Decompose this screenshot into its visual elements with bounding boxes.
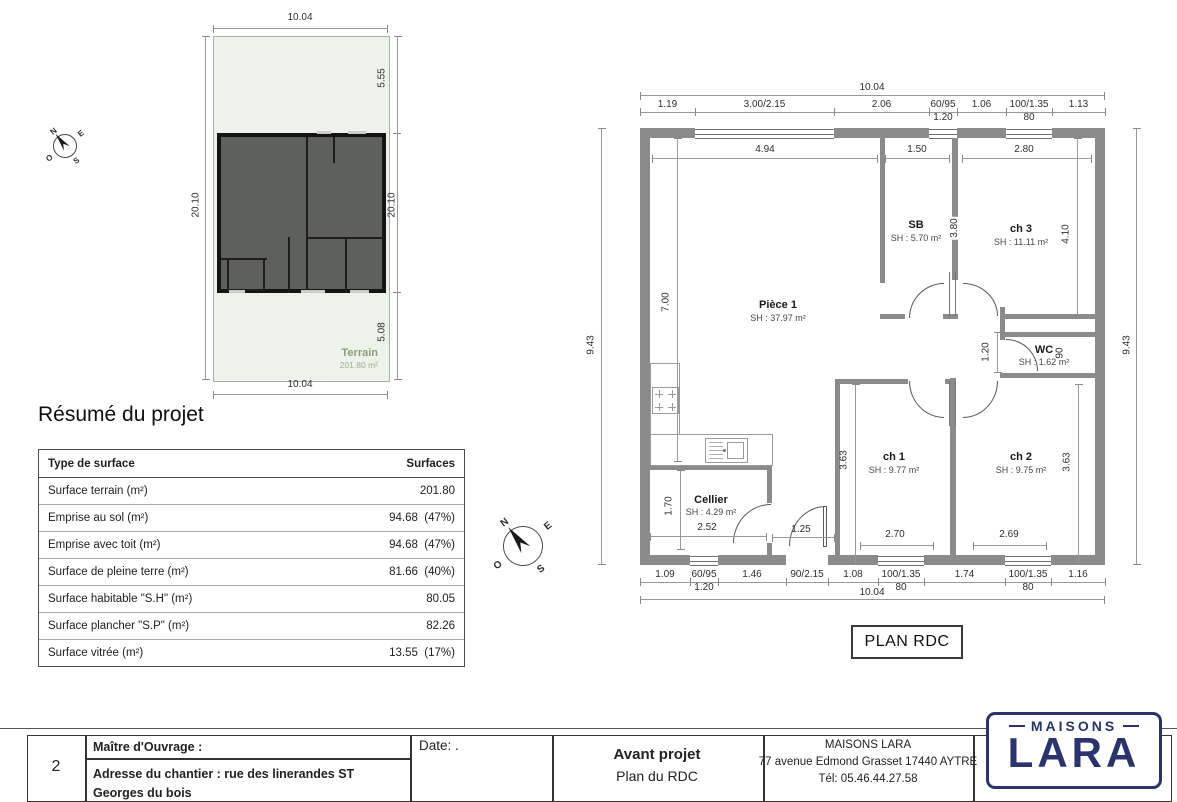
col-value-header: Surfaces bbox=[406, 458, 455, 470]
dim-label: 10.04 bbox=[287, 379, 312, 390]
dim-label: 3.00/2.15 bbox=[744, 99, 786, 110]
company-phone: Tél: 05.46.44.27.58 bbox=[818, 773, 917, 785]
interior-room-outline bbox=[227, 258, 265, 291]
dim-line bbox=[652, 158, 878, 159]
interior-wall-line bbox=[333, 137, 335, 163]
dim-label: 60/95 bbox=[691, 569, 716, 580]
interior-wall bbox=[835, 379, 840, 565]
dim-segment: 1.08 bbox=[828, 569, 878, 583]
summary-table: Type de surface Surfaces Surface terrain… bbox=[38, 449, 465, 667]
dim-label: 4.10 bbox=[1061, 224, 1072, 243]
table-header-row: Type de surface Surfaces bbox=[39, 450, 464, 478]
dim-line bbox=[973, 545, 1047, 546]
compass-east: E bbox=[76, 128, 86, 138]
row-label: Surface de pleine terre (m²) bbox=[48, 566, 189, 578]
room-area-wc: SH : 1.62 m² bbox=[1019, 357, 1070, 367]
dim-line bbox=[855, 384, 856, 565]
row-label: Surface terrain (m²) bbox=[48, 485, 148, 497]
interior-wall-line bbox=[345, 237, 347, 293]
window bbox=[1006, 129, 1052, 139]
terrain-area-label: 201.80 m² bbox=[298, 360, 378, 370]
room-name-ch3: ch 3 bbox=[1010, 223, 1032, 235]
dim-segment: 3.00/2.15 bbox=[695, 99, 834, 113]
table-row: Surface vitrée (m²)13.55 (17%) bbox=[39, 639, 464, 666]
dim-segment: 1.16 bbox=[1051, 569, 1105, 583]
site-address: Adresse du chantier : rue des linerandes… bbox=[93, 765, 405, 802]
room-name-wc: WC bbox=[1035, 344, 1053, 356]
dim-label: 1.25 bbox=[791, 524, 810, 535]
dim-line bbox=[601, 128, 602, 565]
dim-line bbox=[1077, 138, 1078, 316]
dim-label: 2.52 bbox=[697, 522, 716, 533]
window-mark bbox=[350, 290, 369, 293]
door-leaf bbox=[955, 381, 956, 426]
dim-segment: 90/2.15 bbox=[786, 569, 828, 583]
door-leaf bbox=[949, 272, 950, 316]
compass-north: N bbox=[498, 516, 510, 529]
logo-rule-right bbox=[1123, 725, 1139, 727]
wall bbox=[718, 555, 786, 565]
window bbox=[878, 556, 924, 566]
dim-label: 1.20 bbox=[981, 342, 992, 361]
row-divider bbox=[86, 758, 410, 760]
dim-segment: 1.13 bbox=[1052, 99, 1105, 113]
dim-line bbox=[650, 536, 767, 537]
dim-segment: 60/951.20 bbox=[929, 99, 957, 113]
interior-wall bbox=[880, 314, 905, 319]
dim-line bbox=[860, 545, 934, 546]
dim-tick bbox=[393, 133, 401, 134]
table-row: Emprise au sol (m²)94.68 (47%) bbox=[39, 504, 464, 531]
dim-label: 20.10 bbox=[387, 192, 398, 217]
row-label: Emprise au sol (m²) bbox=[48, 512, 148, 524]
wall bbox=[640, 128, 650, 565]
door-arc-ch1 bbox=[909, 381, 944, 418]
compass-south: S bbox=[71, 155, 81, 165]
burner-mark bbox=[668, 390, 676, 398]
room-name-ch2: ch 2 bbox=[1010, 451, 1032, 463]
plan-caption: PLAN RDC bbox=[865, 633, 950, 651]
door-arc-ch3 bbox=[963, 283, 998, 316]
dim-label: 1.50 bbox=[907, 144, 926, 155]
row-label: Surface plancher "S.P" (m²) bbox=[48, 620, 189, 632]
table-row: Surface plancher "S.P" (m²)82.26 bbox=[39, 612, 464, 639]
compass-west: O bbox=[492, 559, 505, 572]
dim-segment: 1.19 bbox=[640, 99, 695, 113]
room-area-sb: SH : 5.70 m² bbox=[891, 233, 942, 243]
wall bbox=[924, 555, 1005, 565]
room-area-ch1: SH : 9.77 m² bbox=[869, 465, 920, 475]
table-row: Surface de pleine terre (m²)81.66 (40%) bbox=[39, 558, 464, 585]
dim-label: 1.19 bbox=[658, 99, 677, 110]
dim-label: 1.16 bbox=[1068, 569, 1087, 580]
plan-caption-box: PLAN RDC bbox=[851, 625, 963, 659]
dim-sublabel: 1.20 bbox=[694, 582, 713, 594]
cell-divider bbox=[973, 735, 975, 802]
dim-label: 9.43 bbox=[586, 335, 597, 354]
dim-label: 2.80 bbox=[1014, 144, 1033, 155]
interior-wall bbox=[952, 138, 958, 280]
dim-label: 1.13 bbox=[1069, 99, 1088, 110]
room-area-ch3: SH : 11.11 m² bbox=[994, 237, 1048, 247]
dim-label: 3.63 bbox=[1062, 452, 1073, 471]
window-mark bbox=[301, 290, 325, 293]
compass-south: S bbox=[535, 563, 547, 576]
summary-title: Résumé du projet bbox=[38, 403, 204, 427]
dim-label: 3.80 bbox=[950, 216, 960, 239]
dim-label: 100/1.35 bbox=[1010, 99, 1049, 110]
dim-label: 1.74 bbox=[955, 569, 974, 580]
window-mark bbox=[317, 131, 331, 134]
dim-label: 2.70 bbox=[885, 529, 904, 540]
row-value: 201.80 bbox=[420, 485, 455, 497]
dim-segment: 1.09 bbox=[640, 569, 690, 583]
dim-label: 5.08 bbox=[377, 322, 388, 341]
cell-divider bbox=[410, 735, 412, 802]
window-mark bbox=[348, 131, 366, 134]
cell-divider bbox=[763, 735, 765, 802]
interior-wall bbox=[1000, 373, 1095, 378]
dim-label: 3.63 bbox=[839, 450, 850, 469]
door-arc-sb bbox=[909, 283, 944, 318]
company-address: 77 avenue Edmond Grasset 17440 AYTRE bbox=[759, 756, 977, 768]
window-mark bbox=[229, 290, 245, 293]
door-arc-ch2 bbox=[963, 381, 998, 418]
dim-line bbox=[213, 394, 388, 395]
dim-label: 2.69 bbox=[999, 529, 1018, 540]
dim-label: 10.04 bbox=[859, 587, 884, 598]
dim-label: 9.43 bbox=[1122, 335, 1133, 354]
doc-title: Avant projet bbox=[614, 746, 701, 763]
burner-mark bbox=[655, 403, 663, 411]
owner-label: Maître d'Ouvrage : bbox=[93, 740, 202, 754]
room-name-sb: SB bbox=[908, 219, 923, 231]
dim-label: 10.04 bbox=[287, 12, 312, 23]
wall bbox=[834, 128, 929, 138]
dim-segment: 100/1.3580 bbox=[878, 569, 924, 583]
burner-mark bbox=[655, 390, 663, 398]
window bbox=[1005, 556, 1051, 566]
dim-label: 5.55 bbox=[377, 68, 388, 87]
dim-sublabel: 80 bbox=[1023, 112, 1034, 124]
dim-line bbox=[885, 158, 950, 159]
dim-sublabel: 80 bbox=[895, 582, 906, 594]
room-area-ch2: SH : 9.75 m² bbox=[996, 465, 1047, 475]
dim-label: 4.94 bbox=[755, 144, 774, 155]
row-value: 82.26 bbox=[426, 620, 455, 632]
sink-faucet bbox=[723, 449, 726, 452]
door-leaf bbox=[823, 506, 827, 547]
dim-line bbox=[640, 95, 1105, 96]
compass-east: E bbox=[542, 520, 554, 533]
dim-label: 1.70 bbox=[664, 496, 675, 515]
door-leaf bbox=[955, 272, 956, 316]
wall bbox=[1095, 128, 1105, 565]
dim-label: 20.10 bbox=[191, 192, 202, 217]
row-label: Surface habitable "S.H" (m²) bbox=[48, 593, 192, 605]
dim-label: 2.06 bbox=[872, 99, 891, 110]
doc-subtitle: Plan du RDC bbox=[616, 768, 698, 784]
dim-line bbox=[962, 158, 1092, 159]
dim-segment: 1.06 bbox=[957, 99, 1006, 113]
compass-rose: N E S O bbox=[43, 124, 87, 168]
dim-label: 100/1.35 bbox=[1009, 569, 1048, 580]
dim-segment: 1.74 bbox=[924, 569, 1005, 583]
dim-sublabel: 80 bbox=[1022, 582, 1033, 594]
table-row: Surface terrain (m²)201.80 bbox=[39, 478, 464, 504]
window bbox=[690, 556, 718, 566]
door-leaf bbox=[949, 381, 950, 426]
col-type-header: Type de surface bbox=[48, 458, 135, 470]
row-value: 13.55 (17%) bbox=[389, 647, 455, 659]
table-row: Emprise avec toit (m²)94.68 (47%) bbox=[39, 531, 464, 558]
interior-wall-line bbox=[306, 137, 308, 293]
plan-sheet: 10.04 10.04 20.10 5.55 20.10 5.08 Terrai… bbox=[0, 0, 1177, 802]
company-name: MAISONS LARA bbox=[825, 739, 911, 751]
row-label: Surface vitrée (m²) bbox=[48, 647, 143, 659]
row-value: 94.68 (47%) bbox=[389, 512, 455, 524]
dim-segment: 100/1.3580 bbox=[1006, 99, 1052, 113]
compass-west: O bbox=[44, 153, 54, 164]
row-label: Emprise avec toit (m²) bbox=[48, 539, 160, 551]
dim-tick bbox=[393, 292, 401, 293]
dim-label: 1.09 bbox=[655, 569, 674, 580]
terrain-label: Terrain bbox=[298, 347, 378, 359]
dim-segment: 100/1.3580 bbox=[1005, 569, 1051, 583]
room-area-cellier: SH : 4.29 m² bbox=[686, 507, 737, 517]
dim-label: 60/95 bbox=[930, 99, 955, 110]
interior-wall bbox=[767, 470, 772, 503]
dim-segment: 60/951.20 bbox=[690, 569, 718, 583]
interior-wall bbox=[767, 543, 772, 555]
room-area-piece1: SH : 37.97 m² bbox=[750, 313, 806, 323]
dim-line bbox=[1136, 128, 1137, 565]
interior-wall-line bbox=[288, 237, 290, 293]
wall bbox=[957, 128, 1006, 138]
cell-divider bbox=[552, 735, 554, 802]
row-value: 80.05 bbox=[426, 593, 455, 605]
row-value: 81.66 (40%) bbox=[389, 566, 455, 578]
dim-line bbox=[205, 36, 206, 380]
dim-label: 1.06 bbox=[972, 99, 991, 110]
interior-wall bbox=[1000, 332, 1095, 337]
table-row: Surface habitable "S.H" (m²)80.05 bbox=[39, 585, 464, 612]
page-number: 2 bbox=[52, 758, 61, 776]
date-label: Date: . bbox=[419, 738, 459, 753]
company-logo: MAISONS LARA bbox=[986, 712, 1162, 789]
logo-rule-left bbox=[1009, 725, 1025, 727]
dim-label: 90/2.15 bbox=[790, 569, 823, 580]
dim-sublabel: 1.20 bbox=[933, 112, 952, 124]
dim-line bbox=[213, 28, 388, 29]
dim-line bbox=[680, 470, 681, 550]
dim-segment: 2.06 bbox=[834, 99, 929, 113]
dim-line bbox=[640, 599, 1105, 600]
dim-label: 10.04 bbox=[859, 82, 884, 93]
compass-rose: N E S O bbox=[489, 512, 557, 580]
dim-label: 1.46 bbox=[742, 569, 761, 580]
sink-drainer bbox=[709, 442, 723, 459]
sink-basin bbox=[727, 442, 744, 459]
row-value: 94.68 (47%) bbox=[389, 539, 455, 551]
dim-line bbox=[1078, 384, 1079, 565]
burner-mark bbox=[668, 403, 676, 411]
dim-line bbox=[677, 138, 678, 462]
dim-label: 7.00 bbox=[661, 292, 672, 311]
dim-line bbox=[772, 537, 835, 538]
cell-divider bbox=[85, 735, 87, 802]
dim-line bbox=[997, 332, 998, 373]
bay-window bbox=[695, 129, 834, 139]
room-name-cellier: Cellier bbox=[694, 494, 728, 506]
room-name-ch1: ch 1 bbox=[883, 451, 905, 463]
dim-segment: 1.46 bbox=[718, 569, 786, 583]
dim-label: 1.08 bbox=[843, 569, 862, 580]
dim-label: 100/1.35 bbox=[882, 569, 921, 580]
interior-wall bbox=[835, 379, 908, 384]
room-name-piece1: Pièce 1 bbox=[759, 299, 797, 311]
logo-lara-text: LARA bbox=[989, 731, 1159, 775]
